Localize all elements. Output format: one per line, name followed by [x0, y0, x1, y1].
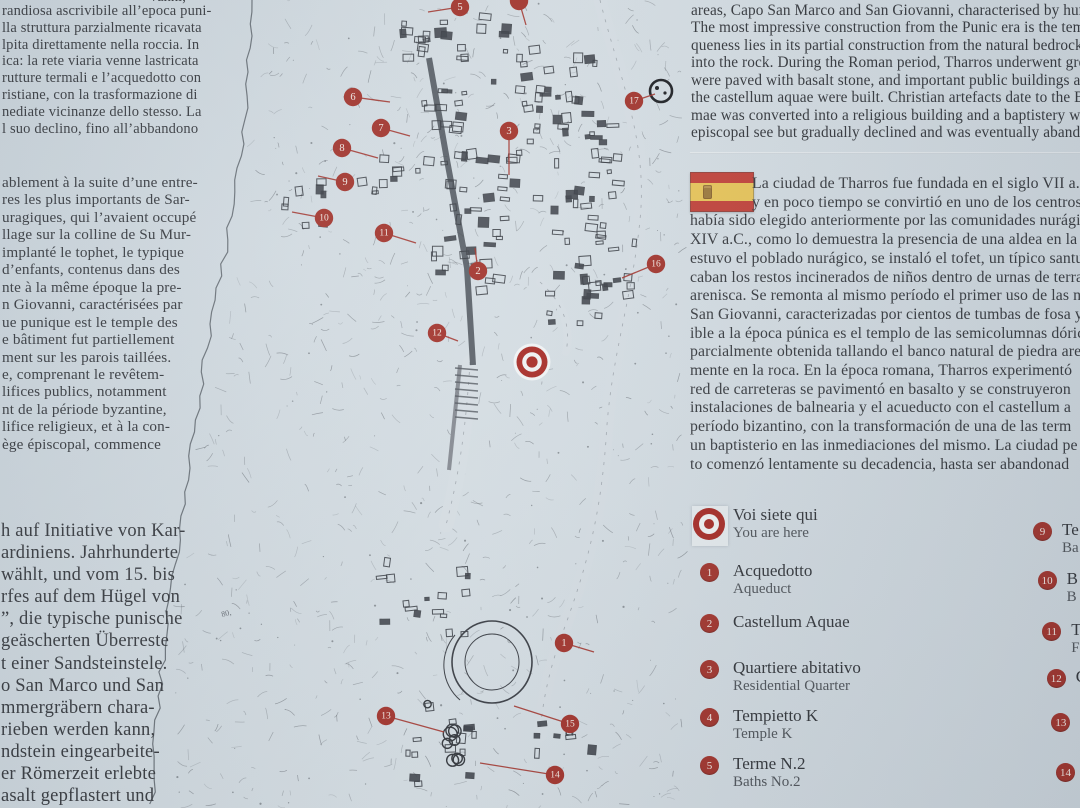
- legend-item: 2 Castellum Aquae: [700, 612, 850, 633]
- text-line: n Giovanni, caractérisées par: [2, 296, 198, 313]
- legend-label: Castellum Aquae: [733, 612, 850, 632]
- map-marker-17: 17: [625, 92, 643, 110]
- svg-text:13: 13: [381, 712, 391, 722]
- text-line: nte à la même époque la pre-: [2, 279, 198, 296]
- text-line: y en poco tiempo se convirtió en uno de …: [752, 194, 1080, 213]
- you-are-here-legend: Voi siete qui You are here: [733, 505, 818, 542]
- legend-number: 11: [1046, 626, 1057, 638]
- legend-number: 1: [707, 567, 713, 579]
- text-line: The most impressive construction from th…: [691, 19, 1080, 36]
- text-line: nediate vicinanze dello stesso. La: [2, 104, 212, 121]
- legend-number-badge: 14: [1056, 763, 1075, 782]
- legend-number: 5: [707, 760, 713, 772]
- map-marker-7: 7: [372, 119, 390, 137]
- text-line: l suo declino, fino all’abbandono: [2, 121, 212, 138]
- you-are-here-icon-dot: [704, 519, 714, 529]
- legend-number: 10: [1042, 575, 1053, 587]
- german-paragraph: h auf Initiative von Kar-ardiniens. Jahr…: [1, 520, 185, 807]
- legend-item: 5 Terme N.2 Baths No.2: [700, 754, 805, 791]
- legend-number-badge: 13: [1051, 713, 1070, 732]
- text-line: ardiniens. Jahrhunderte: [1, 542, 185, 564]
- text-line: mente en la roca. En la época romana, Th…: [690, 362, 1080, 381]
- svg-text:8: 8: [339, 143, 344, 154]
- legend-number-badge: 4: [700, 708, 719, 727]
- text-line: XIV a.C., como lo demuestra la presencia…: [690, 231, 1080, 250]
- map-marker-10: 10: [315, 209, 333, 227]
- legend-label: T: [1071, 620, 1080, 640]
- legend-number-badge: 10: [1038, 571, 1057, 590]
- text-line: período bizantino, con la transformación…: [690, 418, 1080, 437]
- text-line: asalt gepflastert und: [1, 785, 185, 807]
- english-paragraph: areas, Capo San Marco and San Giovanni, …: [691, 2, 1080, 142]
- map-marker-cut: [510, 0, 528, 10]
- legend-sublabel: F: [1071, 640, 1080, 657]
- legend-item: 9 Te Ba: [1033, 520, 1079, 557]
- information-panel-photo: 80,561773891011216121131514 vanni, randi…: [0, 0, 1080, 808]
- text-line: San Giovanni, caracterizadas por cientos…: [690, 306, 1080, 325]
- svg-text:10: 10: [319, 214, 329, 224]
- text-line: mae was converted into a religious build…: [691, 107, 1080, 124]
- text-line: rfes auf dem Hügel von: [1, 586, 185, 608]
- text-line: er Römerzeit erlebte: [1, 763, 185, 785]
- svg-text:5: 5: [457, 2, 462, 13]
- legend-sublabel: Aqueduct: [733, 581, 812, 598]
- legend-number: 14: [1060, 767, 1071, 779]
- legend-sublabel: B: [1067, 589, 1078, 606]
- text-line: estuvo el poblado nurágico, se instaló e…: [690, 250, 1080, 269]
- legend-item: 13: [1051, 711, 1080, 732]
- legend-number: 9: [1040, 526, 1046, 538]
- map-marker-2: 2: [469, 262, 487, 280]
- text-line: t einer Sandsteinstele.: [1, 653, 185, 675]
- text-line: lpita direttamente nella roccia. In: [2, 37, 212, 54]
- legend-number: 4: [707, 712, 713, 724]
- text-line: lifice religieux, et à la con-: [2, 418, 198, 435]
- text-line: queness lies in its partial construction…: [691, 37, 1080, 54]
- text-line: geäscherten Überreste: [1, 630, 185, 652]
- text-line: un baptisterio en las inmediaciones del …: [690, 437, 1080, 456]
- text-line: arenisca. Se remonta al mismo período el…: [690, 287, 1080, 306]
- legend-number-badge: 1: [700, 563, 719, 582]
- legend-sublabel: Ba: [1062, 540, 1079, 557]
- text-line: implanté le tophet, le typique: [2, 244, 198, 261]
- text-line: ”, die typische punische: [1, 608, 185, 630]
- legend-number-badge: 5: [700, 756, 719, 775]
- text-line: into the rock. During the Roman period, …: [691, 54, 1080, 71]
- svg-text:1: 1: [561, 638, 566, 649]
- text-line: mmergräbern chara-: [1, 697, 185, 719]
- svg-text:17: 17: [629, 97, 639, 107]
- legend-sublabel: Temple K: [733, 726, 818, 743]
- text-line: instalaciones de balnearia y el acueduct…: [690, 399, 1080, 418]
- text-line: La ciudad de Tharros fue fundada en el s…: [752, 175, 1080, 194]
- svg-text:12: 12: [432, 329, 442, 339]
- legend-item: 4 Tempietto K Temple K: [700, 706, 818, 743]
- map-marker-15: 15: [561, 715, 579, 733]
- legend-item: 12 C: [1047, 667, 1080, 688]
- legend-label: Acquedotto: [733, 561, 812, 581]
- legend-sublabel: Residential Quarter: [733, 678, 861, 695]
- text-line: areas, Capo San Marco and San Giovanni, …: [691, 2, 1080, 19]
- legend-number: 2: [707, 618, 713, 630]
- svg-text:6: 6: [350, 92, 355, 103]
- legend-label: Tempietto K: [733, 706, 818, 726]
- text-line: ible a la época púnica es el templo de l…: [690, 325, 1080, 344]
- legend-item: 14: [1056, 761, 1080, 782]
- svg-text:7: 7: [378, 123, 383, 134]
- legend-number-badge: 2: [700, 614, 719, 633]
- legend-number-badge: 11: [1042, 622, 1061, 641]
- map-depth-label: 80,: [220, 608, 232, 619]
- text-line: lifices publics, notamment: [2, 383, 198, 400]
- text-line: parcialmente obtenida tallando el banco …: [690, 343, 1080, 362]
- legend-item: 3 Quartiere abitativo Residential Quarte…: [700, 658, 861, 695]
- text-line: llage sur la colline de Su Mur-: [2, 226, 198, 243]
- text-line: d’enfants, contenus dans des: [2, 261, 198, 278]
- spanish-paragraph: La ciudad de Tharros fue fundada en el s…: [690, 175, 1080, 474]
- text-line: uragiques, qui l’avaient occupé: [2, 209, 198, 226]
- map-marker-3: 3: [500, 122, 518, 140]
- map-you-are-here-bullseye: [514, 344, 551, 381]
- text-line: ica: la rete viaria venne lastricata: [2, 53, 212, 70]
- legend-label: Terme N.2: [733, 754, 805, 774]
- text-line: había sido elegido anteriormente por las…: [690, 212, 1080, 231]
- text-line: res les plus importants de Sar-: [2, 191, 198, 208]
- map-marker-9: 9: [336, 173, 354, 191]
- text-line: to comenzó lentamente su decadencia, has…: [690, 456, 1080, 475]
- legend-item: 10 B B: [1038, 569, 1078, 606]
- map-marker-12: 12: [428, 324, 446, 342]
- legend-label: Voi siete qui: [733, 505, 818, 525]
- text-line: were paved with basalt stone, and import…: [691, 72, 1080, 89]
- map-marker-8: 8: [333, 139, 351, 157]
- text-line: rutture termali e l’acquedotto con: [2, 70, 212, 87]
- text-line: o San Marco und San: [1, 675, 185, 697]
- legend-number-badge: 12: [1047, 669, 1066, 688]
- text-line: nt de la période byzantine,: [2, 401, 198, 418]
- text-line: wählt, und vom 15. bis: [1, 564, 185, 586]
- french-paragraph: ablement à la suite d’une entre-res les …: [2, 174, 198, 453]
- section-divider: [690, 152, 1080, 154]
- map-marker-14: 14: [546, 766, 564, 784]
- text-line: the castellum aquae were built. Christia…: [691, 89, 1080, 106]
- svg-text:14: 14: [550, 771, 560, 781]
- italian-paragraph: randiosa ascrivibile all’epoca puni-lla …: [2, 3, 212, 137]
- map-marker-11: 11: [375, 224, 393, 242]
- text-line: lla struttura parzialmente ricavata: [2, 20, 212, 37]
- map-marker-5: 5: [451, 0, 469, 16]
- legend-item: 1 Acquedotto Aqueduct: [700, 561, 812, 598]
- legend-sublabel: You are here: [733, 525, 818, 542]
- legend-number: 12: [1051, 673, 1062, 685]
- map-marker-16: 16: [647, 255, 665, 273]
- text-line: e, comprenant le revêtem-: [2, 366, 198, 383]
- map-marker-1: 1: [555, 634, 573, 652]
- text-line: ue punique est le temple des: [2, 314, 198, 331]
- legend-item: 11 T F: [1042, 620, 1080, 657]
- legend-label: Te: [1062, 520, 1079, 540]
- text-line: ndstein eingearbeite-: [1, 741, 185, 763]
- legend-label: C: [1076, 667, 1080, 687]
- legend-number: 13: [1055, 717, 1066, 729]
- legend-number-badge: 3: [700, 660, 719, 679]
- text-line: randiosa ascrivibile all’epoca puni-: [2, 3, 212, 20]
- svg-text:9: 9: [342, 177, 347, 188]
- text-line: h auf Initiative von Kar-: [1, 520, 185, 542]
- legend-sublabel: Baths No.2: [733, 774, 805, 791]
- map-marker-13: 13: [377, 707, 395, 725]
- svg-text:2: 2: [475, 266, 480, 277]
- text-line: e bâtiment fut partiellement: [2, 331, 198, 348]
- text-line: caban los restos incinerados de niños de…: [690, 269, 1080, 288]
- text-line: episcopal see but gradually declined and…: [691, 124, 1080, 141]
- text-line: red de carreteras se pavimentó en basalt…: [690, 381, 1080, 400]
- legend-label: B: [1067, 569, 1078, 589]
- svg-text:3: 3: [506, 126, 511, 137]
- text-line: ment sur les parois taillées.: [2, 349, 198, 366]
- svg-text:16: 16: [651, 260, 661, 270]
- text-line: ablement à la suite d’une entre-: [2, 174, 198, 191]
- svg-text:11: 11: [379, 229, 388, 239]
- legend-number: 3: [707, 664, 713, 676]
- legend-label: Quartiere abitativo: [733, 658, 861, 678]
- legend-number-badge: 9: [1033, 522, 1052, 541]
- svg-text:15: 15: [565, 720, 575, 730]
- map-marker-6: 6: [344, 88, 362, 106]
- text-line: ristiane, con la trasformazione di: [2, 87, 212, 104]
- text-line: rieben werden kann,: [1, 719, 185, 741]
- text-line: ège épiscopal, commence: [2, 436, 198, 453]
